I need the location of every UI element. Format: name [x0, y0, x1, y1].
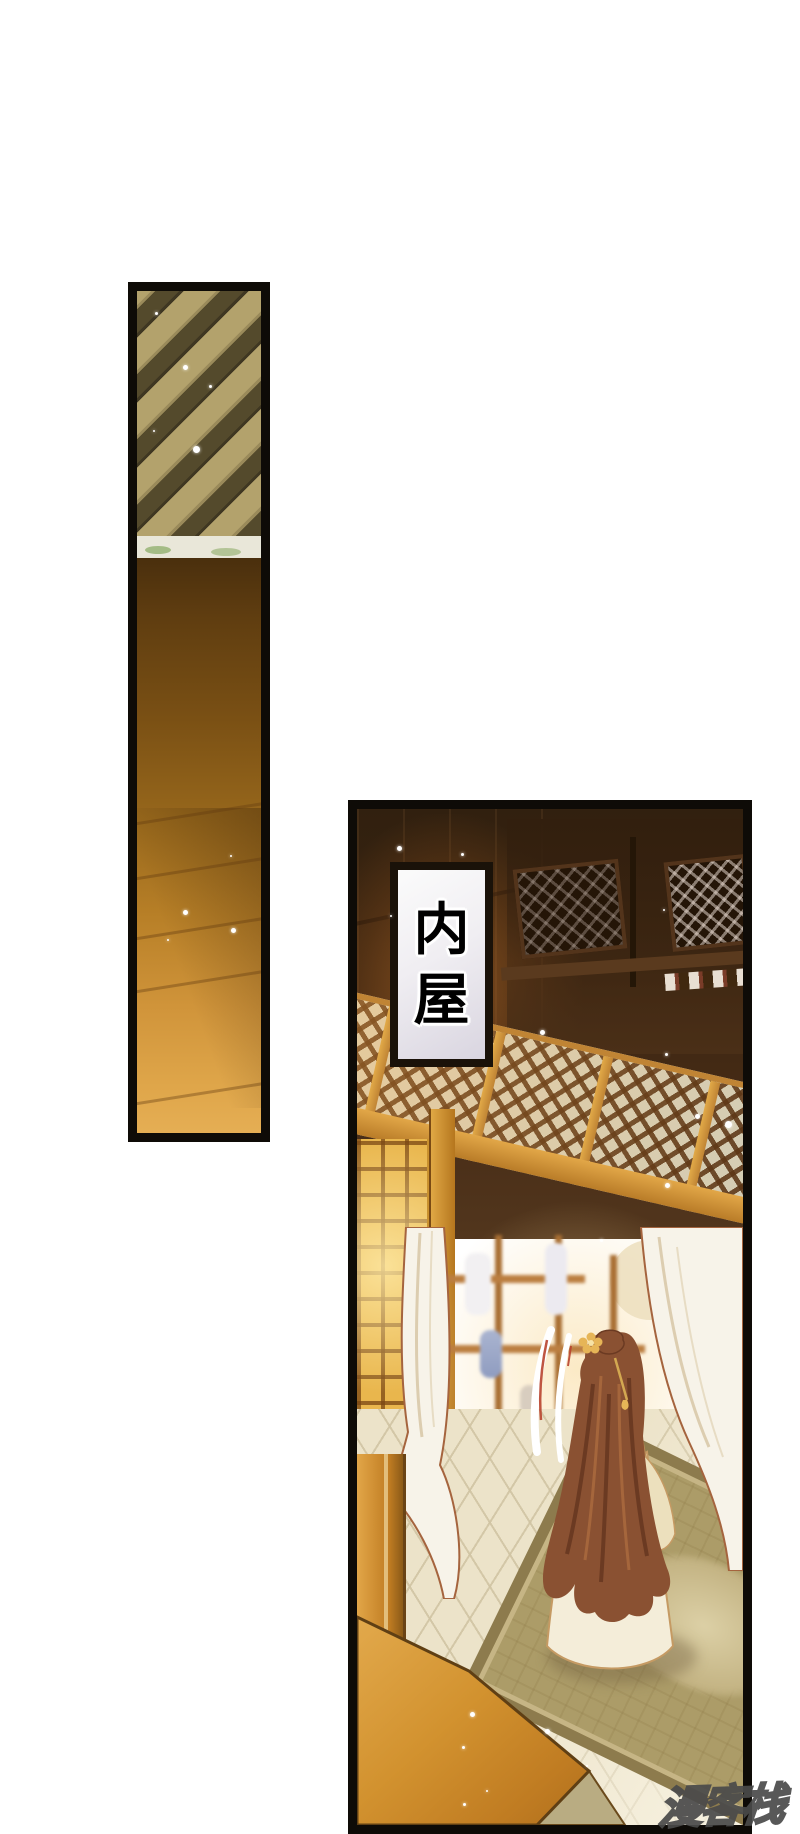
curtain-left-art: [392, 1227, 532, 1599]
sparkle-dot: [231, 928, 236, 933]
sparkle-dot: [586, 1765, 588, 1767]
sparkle-dot: [230, 855, 232, 857]
caption-char-2: 屋: [414, 972, 470, 1028]
sparkle-dot: [695, 1114, 700, 1119]
panel-inner-room: 内 屋: [348, 800, 752, 1834]
sparkle-dot: [390, 915, 392, 917]
sparkle-dot: [397, 846, 402, 851]
sparkle-dot: [193, 446, 200, 453]
sparkle-dot: [486, 1790, 488, 1792]
caption-char-1: 内: [414, 902, 470, 958]
high-cabinet-art: [507, 819, 743, 1054]
ceiling-beams-art: [137, 291, 261, 536]
watermark-logo: 漫客栈: [656, 1767, 800, 1834]
inner-room-caption: 内 屋: [390, 862, 493, 1067]
motion-lines-art: [535, 1330, 571, 1460]
wall-shadow-art: [137, 808, 261, 1108]
lattice-door-art: [513, 859, 628, 960]
sparkle-dot: [183, 910, 188, 915]
foliage-hint-art: [145, 546, 171, 554]
curtain-right-art: [625, 1227, 743, 1571]
sparkle-dot: [545, 1729, 550, 1734]
chest-art: [357, 1609, 657, 1825]
sparkle-dot: [600, 1239, 603, 1242]
wall-gradient-art: [137, 558, 261, 1133]
sparkle-dot: [462, 1746, 465, 1749]
sparkle-dot: [155, 312, 158, 315]
sparkle-dot: [663, 909, 665, 911]
panel-corridor: [128, 282, 270, 1142]
sparkle-dot: [209, 385, 212, 388]
sparkle-dot: [463, 1803, 466, 1806]
sparkle-dot: [665, 1053, 668, 1056]
comic-page: 内 屋 漫客栈: [0, 0, 800, 1834]
cabinet-drawer-art: [665, 968, 752, 991]
sparkle-dot: [153, 430, 155, 432]
sparkle-dot: [470, 1712, 475, 1717]
sparkle-dot: [461, 853, 464, 856]
hanging-cloth-art: [545, 1243, 567, 1315]
sparkle-dot: [540, 1030, 545, 1035]
light-strip-art: [137, 536, 261, 558]
sparkle-dot: [665, 1183, 670, 1188]
sparkle-dot: [167, 939, 169, 941]
sparkle-dot: [725, 1121, 732, 1128]
foliage-hint-art: [211, 548, 241, 556]
lattice-door-art: [664, 854, 752, 952]
sparkle-dot: [183, 365, 188, 370]
